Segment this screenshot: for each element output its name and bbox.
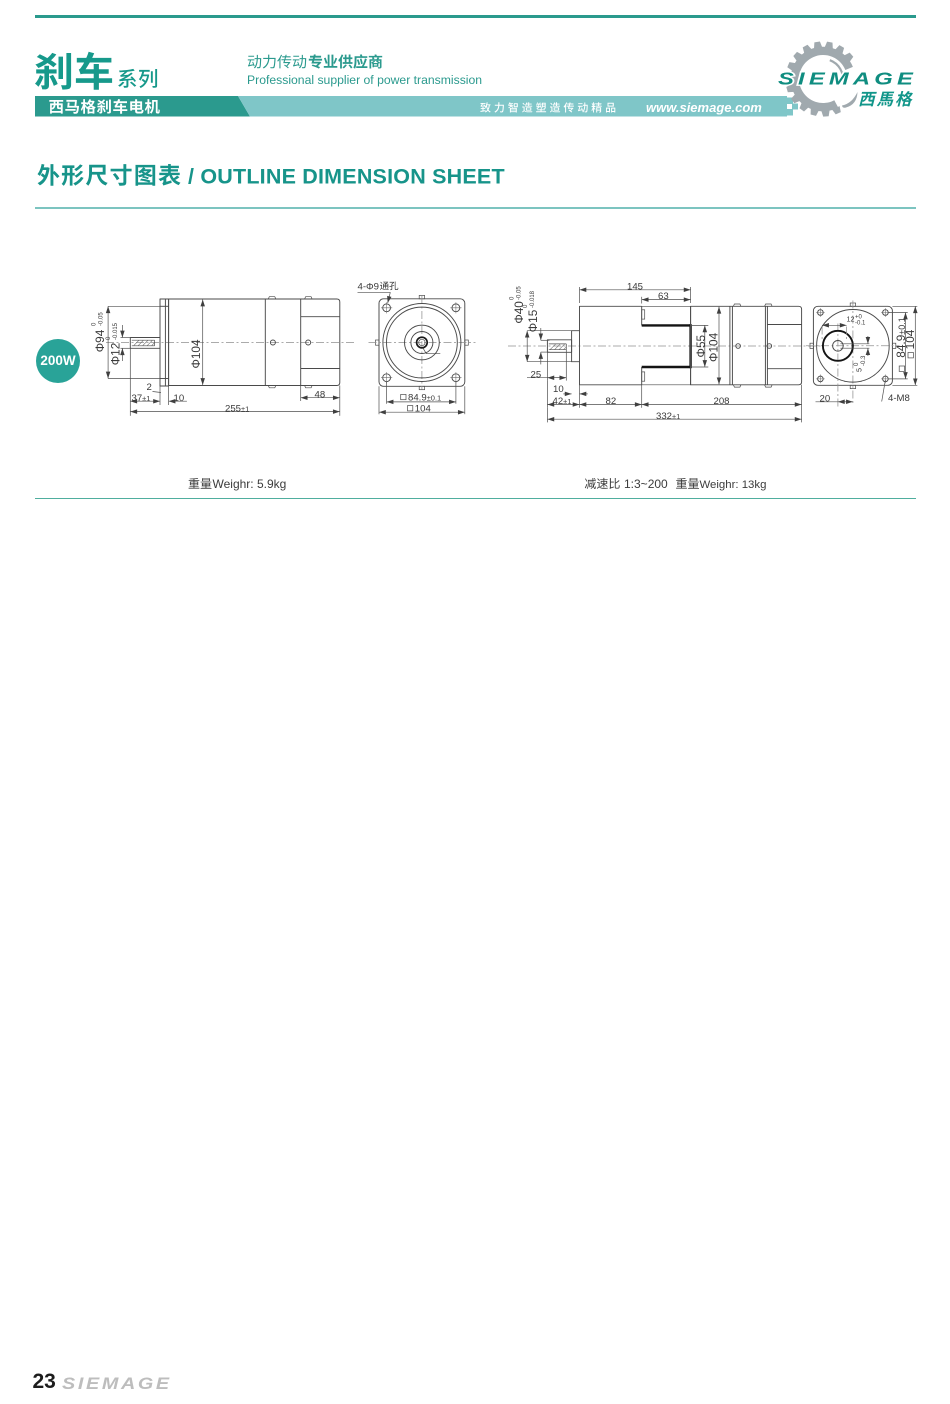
svg-text:42±1: 42±1 (553, 396, 572, 407)
svg-text:0: 0 (510, 296, 516, 300)
svg-text:104: 104 (903, 329, 917, 349)
svg-text:0: 0 (854, 362, 860, 366)
svg-text:SIEMAGE: SIEMAGE (778, 69, 917, 89)
svg-text:Weighr: 13kg: Weighr: 13kg (700, 479, 767, 491)
svg-text:332±1: 332±1 (656, 411, 680, 422)
svg-text:208: 208 (714, 396, 730, 407)
svg-text:25: 25 (531, 369, 542, 380)
svg-text:82: 82 (606, 396, 617, 407)
svg-text:-0.3: -0.3 (861, 355, 867, 366)
svg-text:10: 10 (174, 393, 185, 404)
svg-text:20: 20 (820, 393, 831, 404)
svg-text:Φ40: Φ40 (512, 301, 526, 324)
svg-text:Φ12: Φ12 (109, 343, 123, 366)
svg-text:0: 0 (92, 322, 98, 326)
svg-text:/ OUTLINE DIMENSION SHEET: / OUTLINE DIMENSION SHEET (188, 165, 505, 189)
svg-text:-0.018: -0.018 (530, 290, 536, 308)
svg-text:84.9±0.1: 84.9±0.1 (408, 392, 441, 403)
svg-text:-0.015: -0.015 (113, 322, 119, 340)
svg-text:2: 2 (147, 382, 152, 393)
svg-text:63: 63 (658, 291, 669, 302)
svg-text:www.siemage.com: www.siemage.com (646, 100, 762, 115)
svg-text:-0.1: -0.1 (855, 321, 866, 327)
svg-text:Weighr: 5.9kg: Weighr: 5.9kg (213, 477, 287, 491)
svg-text:10: 10 (553, 384, 564, 395)
svg-text:12: 12 (847, 315, 855, 324)
svg-text:255±1: 255±1 (225, 403, 249, 414)
svg-text:37±1: 37±1 (132, 393, 151, 404)
svg-text:1:3~200: 1:3~200 (624, 477, 668, 491)
svg-text:4-M8: 4-M8 (888, 393, 910, 404)
svg-text:-0.05: -0.05 (517, 286, 523, 300)
svg-text:5: 5 (855, 368, 864, 372)
svg-text:Φ104: Φ104 (707, 332, 721, 362)
svg-text:145: 145 (627, 281, 643, 292)
svg-text:-0.05: -0.05 (99, 312, 105, 326)
svg-text:Φ15: Φ15 (526, 309, 540, 332)
svg-text:SIEMAGE: SIEMAGE (62, 1375, 172, 1393)
svg-text:Φ104: Φ104 (189, 339, 203, 369)
svg-text:4-Φ9: 4-Φ9 (358, 281, 380, 292)
svg-text:104: 104 (415, 403, 432, 414)
svg-text:48: 48 (315, 389, 326, 400)
